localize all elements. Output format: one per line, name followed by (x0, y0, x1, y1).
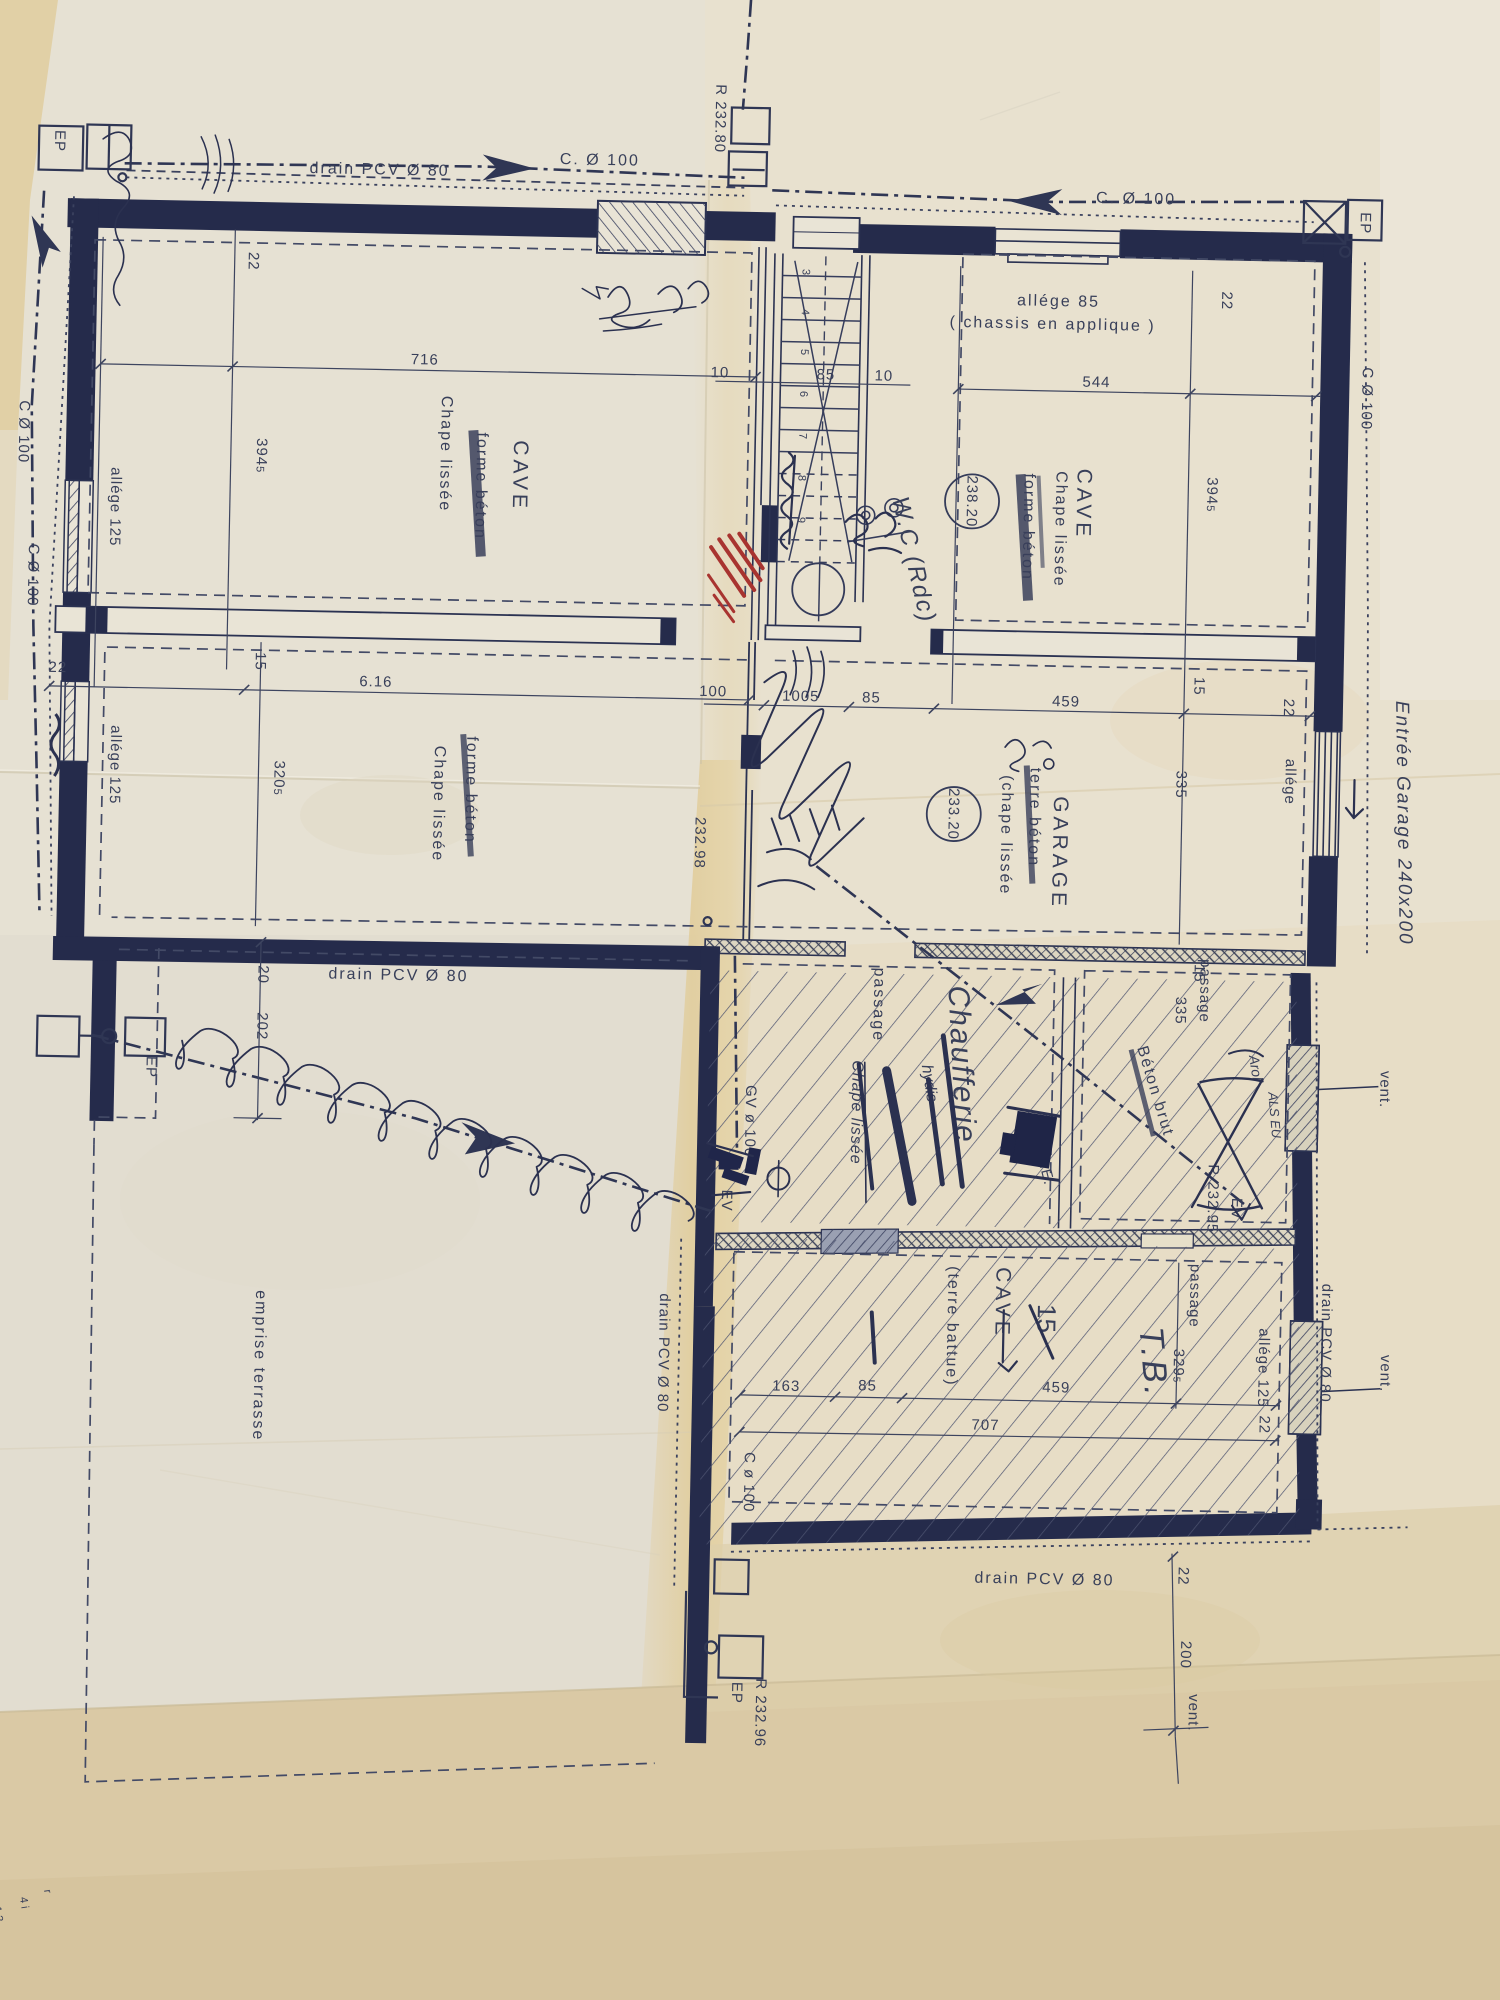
svg-text:allége 125: allége 125 (106, 725, 125, 805)
svg-text:163: 163 (772, 1378, 800, 1396)
svg-text:22: 22 (1218, 291, 1235, 310)
svg-text:15: 15 (1190, 964, 1207, 983)
svg-text:335: 335 (1172, 770, 1190, 798)
svg-text:CAVE: CAVE (1071, 468, 1095, 540)
svg-text:544: 544 (1082, 374, 1110, 392)
svg-text:passage: passage (869, 967, 887, 1042)
svg-text:22: 22 (48, 659, 67, 676)
svg-text:allége 125: allége 125 (106, 467, 125, 547)
svg-text:238.20: 238.20 (963, 475, 981, 527)
svg-text:C. Ø 100: C. Ø 100 (1096, 190, 1176, 209)
svg-text:4 i: 4 i (17, 1896, 31, 1909)
svg-text:GARAGE: GARAGE (1047, 796, 1072, 910)
svg-text:4: 4 (799, 309, 811, 315)
svg-text:allége: allége (1281, 759, 1299, 805)
svg-text:3: 3 (800, 269, 812, 275)
svg-text:232.98: 232.98 (691, 817, 709, 869)
svg-text:EP: EP (1356, 212, 1373, 234)
svg-text:R 232.96: R 232.96 (751, 1678, 769, 1747)
svg-text:85: 85 (858, 1377, 877, 1394)
svg-text:R 232.95: R 232.95 (1203, 1164, 1221, 1233)
svg-text:9: 9 (795, 517, 807, 523)
svg-text:15: 15 (1190, 677, 1207, 696)
svg-text:allége 85: allége 85 (1017, 292, 1100, 311)
svg-text:EP: EP (728, 1682, 745, 1704)
svg-text:10: 10 (874, 367, 893, 384)
svg-text:drain PCV Ø 80: drain PCV Ø 80 (974, 1570, 1114, 1590)
svg-text:emprise terrasse: emprise terrasse (249, 1290, 269, 1441)
svg-text:459: 459 (1052, 693, 1080, 711)
svg-text:C Ø 100: C Ø 100 (24, 543, 42, 606)
svg-text:(terre battue): (terre battue) (942, 1266, 961, 1387)
svg-text:716: 716 (411, 351, 439, 369)
svg-text:335: 335 (1172, 996, 1190, 1024)
svg-text:T.B.: T.B. (1132, 1325, 1176, 1399)
svg-text:1005: 1005 (782, 688, 820, 706)
svg-text:drain PCV Ø 80: drain PCV Ø 80 (1316, 1283, 1335, 1402)
svg-text:707: 707 (971, 1417, 999, 1435)
svg-text:Chape lissée: Chape lissée (1050, 471, 1069, 588)
svg-text:85: 85 (816, 366, 835, 383)
svg-text:7: 7 (796, 433, 808, 439)
svg-text:CAVE: CAVE (508, 440, 532, 512)
svg-text:C ø 100: C ø 100 (740, 1452, 758, 1513)
svg-text:C Ø 100: C Ø 100 (1358, 367, 1376, 430)
svg-text:passage: passage (1186, 1264, 1204, 1328)
svg-text:15: 15 (252, 652, 269, 671)
svg-text:459: 459 (1042, 1379, 1070, 1397)
svg-text:vent.: vent. (1376, 1355, 1394, 1393)
svg-text:22: 22 (1174, 1567, 1191, 1586)
svg-text:(chape lissée: (chape lissée (996, 775, 1015, 896)
svg-text:22: 22 (1280, 699, 1297, 718)
svg-text:202: 202 (253, 1012, 271, 1040)
svg-text:Chape lissée: Chape lissée (429, 746, 448, 863)
svg-text:EP: EP (51, 130, 68, 152)
svg-text:5: 5 (798, 349, 810, 355)
svg-text:drain PCV Ø 80: drain PCV Ø 80 (328, 966, 468, 986)
svg-text:20: 20 (254, 965, 271, 984)
svg-text:C. Ø 100: C. Ø 100 (560, 151, 640, 170)
svg-text:100: 100 (699, 683, 727, 701)
svg-text:22: 22 (245, 252, 262, 271)
svg-text:vent.: vent. (1184, 1694, 1202, 1732)
svg-text:10: 10 (710, 364, 729, 381)
svg-text:Chape lissée: Chape lissée (436, 396, 455, 513)
svg-text:233.20: 233.20 (944, 788, 962, 840)
svg-text:drain PCV Ø 80: drain PCV Ø 80 (654, 1293, 673, 1412)
svg-text:R 232.80: R 232.80 (711, 84, 729, 153)
svg-text:C Ø 100: C Ø 100 (15, 400, 33, 463)
svg-text:6.16: 6.16 (359, 673, 393, 691)
svg-text:22: 22 (1255, 1415, 1272, 1434)
svg-text:EP: EP (142, 1056, 159, 1078)
svg-text:6: 6 (797, 391, 809, 397)
svg-text:85: 85 (862, 689, 881, 706)
svg-text:8: 8 (795, 475, 807, 481)
svg-text:allége 125: allége 125 (1254, 1328, 1273, 1408)
svg-text:drain PCV Ø 80: drain PCV Ø 80 (309, 160, 449, 180)
svg-text:200: 200 (1177, 1641, 1195, 1669)
svg-text:GV ø 100: GV ø 100 (741, 1085, 759, 1158)
svg-text:Entrée Garage 240x200: Entrée Garage 240x200 (1391, 701, 1416, 946)
svg-text:vent.: vent. (1376, 1071, 1394, 1109)
